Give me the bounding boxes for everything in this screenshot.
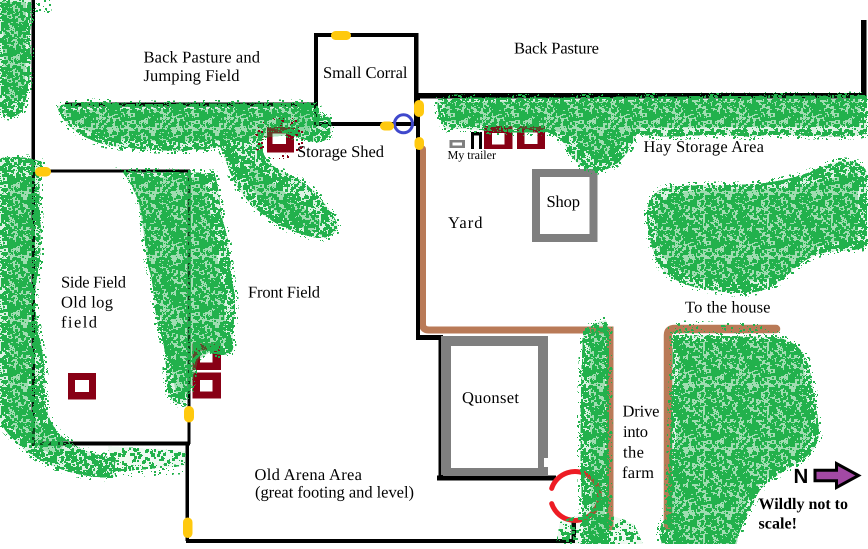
svg-text:Side Field: Side Field <box>61 273 127 292</box>
svg-text:To the house: To the house <box>685 298 771 317</box>
svg-text:Shop: Shop <box>547 192 581 211</box>
svg-text:Storage Shed: Storage Shed <box>297 142 385 161</box>
svg-text:Back Pasture and: Back Pasture and <box>144 48 261 67</box>
svg-text:Back Pasture: Back Pasture <box>514 39 599 58</box>
svg-text:(great footing and level): (great footing and level) <box>255 483 414 502</box>
svg-text:Old Arena Area: Old Arena Area <box>255 465 363 484</box>
svg-text:N: N <box>794 465 809 488</box>
svg-text:Quonset: Quonset <box>462 388 519 407</box>
svg-text:My trailer: My trailer <box>448 148 497 162</box>
svg-text:Drive: Drive <box>623 402 660 421</box>
svg-text:into: into <box>623 422 648 441</box>
svg-text:scale!: scale! <box>759 516 798 533</box>
svg-text:Small Corral: Small Corral <box>323 63 408 82</box>
svg-text:Front Field: Front Field <box>248 283 321 302</box>
svg-text:Yard: Yard <box>448 213 483 232</box>
svg-text:Old log: Old log <box>61 293 113 312</box>
svg-text:farm: farm <box>622 463 654 482</box>
svg-text:Hay Storage Area: Hay Storage Area <box>644 137 765 156</box>
svg-text:Jumping Field: Jumping Field <box>144 66 241 85</box>
svg-text:the: the <box>623 443 644 462</box>
svg-text:Wildly not to: Wildly not to <box>759 496 849 513</box>
